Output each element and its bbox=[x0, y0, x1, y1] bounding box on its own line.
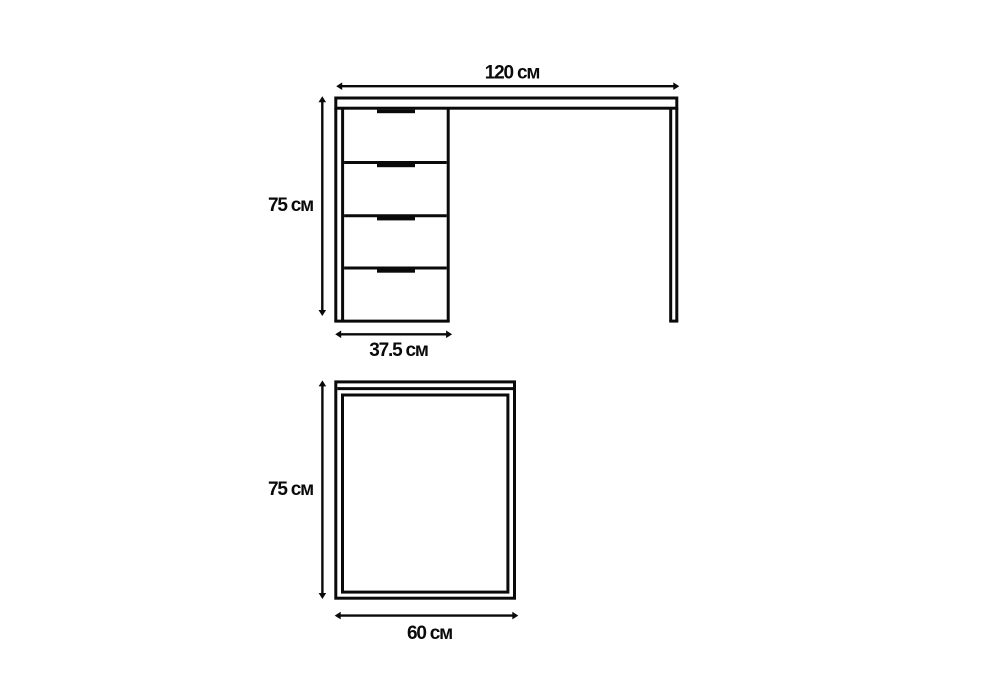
svg-text:75 см: 75 см bbox=[268, 195, 313, 216]
svg-text:75 см: 75 см bbox=[268, 479, 313, 500]
svg-text:37.5 см: 37.5 см bbox=[369, 340, 428, 361]
svg-text:60 см: 60 см bbox=[407, 623, 452, 644]
svg-text:120 см: 120 см bbox=[485, 63, 540, 84]
